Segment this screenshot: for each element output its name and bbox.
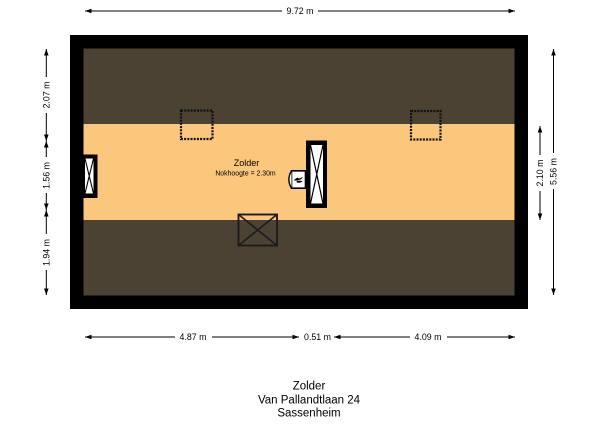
- svg-text:2.07 m: 2.07 m: [41, 82, 51, 109]
- svg-text:Nokhoogte = 2.30m: Nokhoogte = 2.30m: [215, 170, 276, 177]
- svg-text:0.51 m: 0.51 m: [304, 332, 331, 342]
- svg-text:Zolder: Zolder: [234, 158, 260, 168]
- svg-text:1.94 m: 1.94 m: [41, 239, 51, 266]
- svg-text:Zolder: Zolder: [293, 380, 326, 392]
- svg-text:Sassenheim: Sassenheim: [277, 407, 340, 419]
- svg-text:4.09 m: 4.09 m: [415, 332, 442, 342]
- svg-text:5.56 m: 5.56 m: [549, 158, 559, 185]
- svg-text:4.87 m: 4.87 m: [180, 332, 207, 342]
- svg-text:1.56 m: 1.56 m: [41, 162, 51, 189]
- svg-text:9.72 m: 9.72 m: [287, 6, 314, 16]
- svg-text:Van Pallandtlaan 24: Van Pallandtlaan 24: [258, 394, 361, 406]
- svg-text:2.10 m: 2.10 m: [535, 160, 545, 187]
